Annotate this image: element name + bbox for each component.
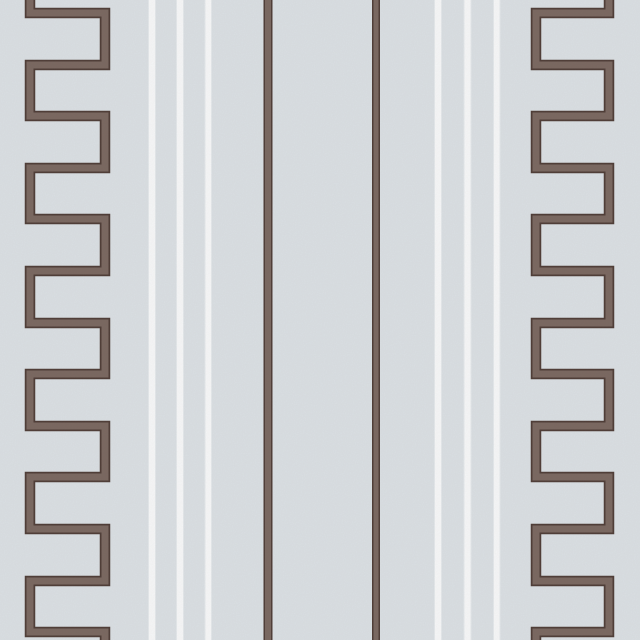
pattern-canvas [0,0,640,640]
greek-key-stripe-pattern [0,0,640,640]
wallpaper-swatch [0,0,640,640]
